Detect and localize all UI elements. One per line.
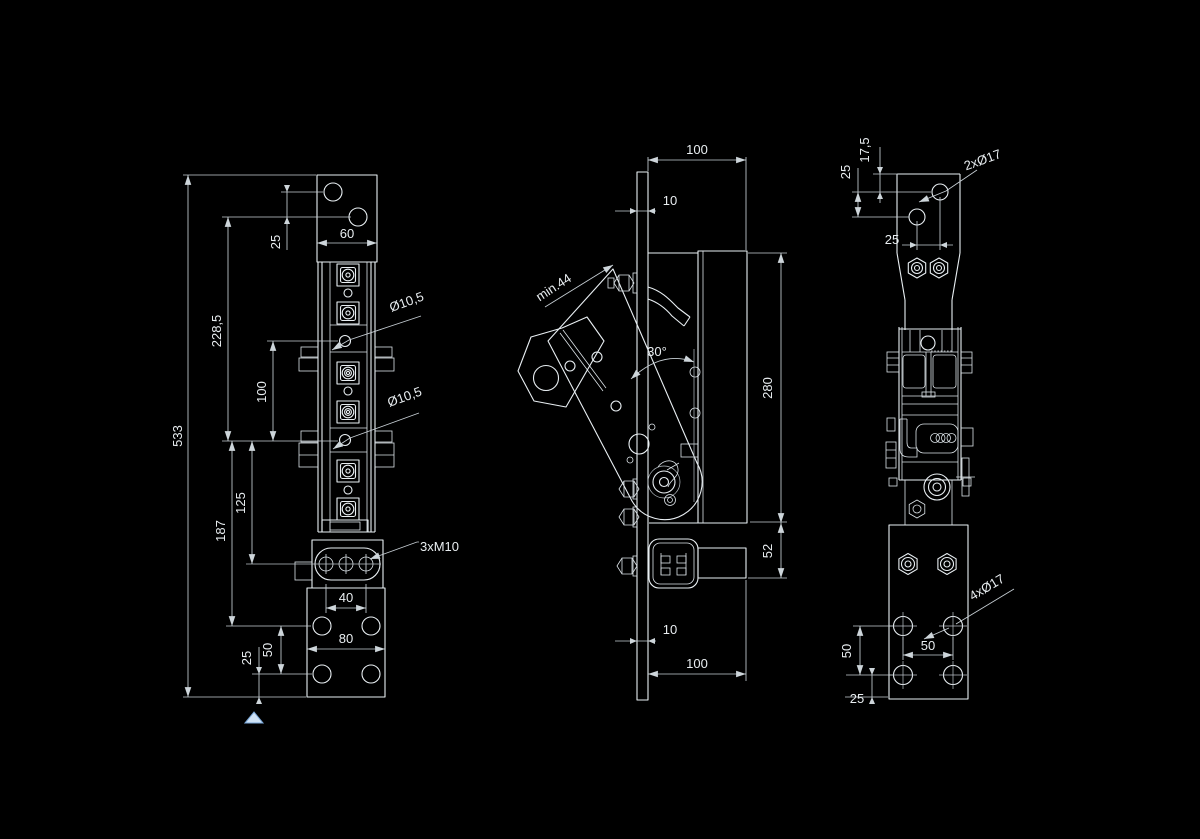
dim-body-height: 280 (760, 377, 775, 399)
cad-drawing: 533 228,5 100 125 187 25 60 Ø10,5 Ø10,5 … (0, 0, 1200, 839)
dim-base-pitch-horizontal: 50 (921, 638, 935, 653)
dim-plate-thickness-bottom: 10 (663, 622, 677, 637)
dim-base-width: 80 (339, 631, 353, 646)
background (0, 0, 1200, 839)
dim-mid-spacing: 125 (233, 492, 248, 514)
dim-slot-pitch: 40 (339, 590, 353, 605)
dim-base-edge: 25 (239, 651, 254, 665)
dim-step-height: 52 (760, 544, 775, 558)
dim-top-pitch-vertical: 25 (838, 165, 853, 179)
dim-base-hole-pitch: 50 (260, 643, 275, 657)
dim-base-pitch-vertical: 50 (839, 644, 854, 658)
dim-top-pitch-horizontal: 25 (885, 232, 899, 247)
dim-top-width: 100 (686, 142, 708, 157)
dim-bottom-width: 100 (686, 656, 708, 671)
dim-upper-offset: 228,5 (209, 315, 224, 348)
dim-plate-thickness-top: 10 (663, 193, 677, 208)
label-thread: 3xM10 (420, 539, 459, 554)
dim-flange-top-edge: 17,5 (857, 137, 872, 162)
dim-angle: 30° (647, 344, 667, 359)
dim-width: 60 (340, 226, 354, 241)
dim-base-edge: 25 (850, 691, 864, 706)
dim-overall-height: 533 (170, 425, 185, 447)
cad-canvas: 533 228,5 100 125 187 25 60 Ø10,5 Ø10,5 … (0, 0, 1200, 839)
dim-top-hole-pitch: 25 (268, 235, 283, 249)
dim-lower-spacing: 187 (213, 520, 228, 542)
dim-pivot-spacing: 100 (254, 381, 269, 403)
